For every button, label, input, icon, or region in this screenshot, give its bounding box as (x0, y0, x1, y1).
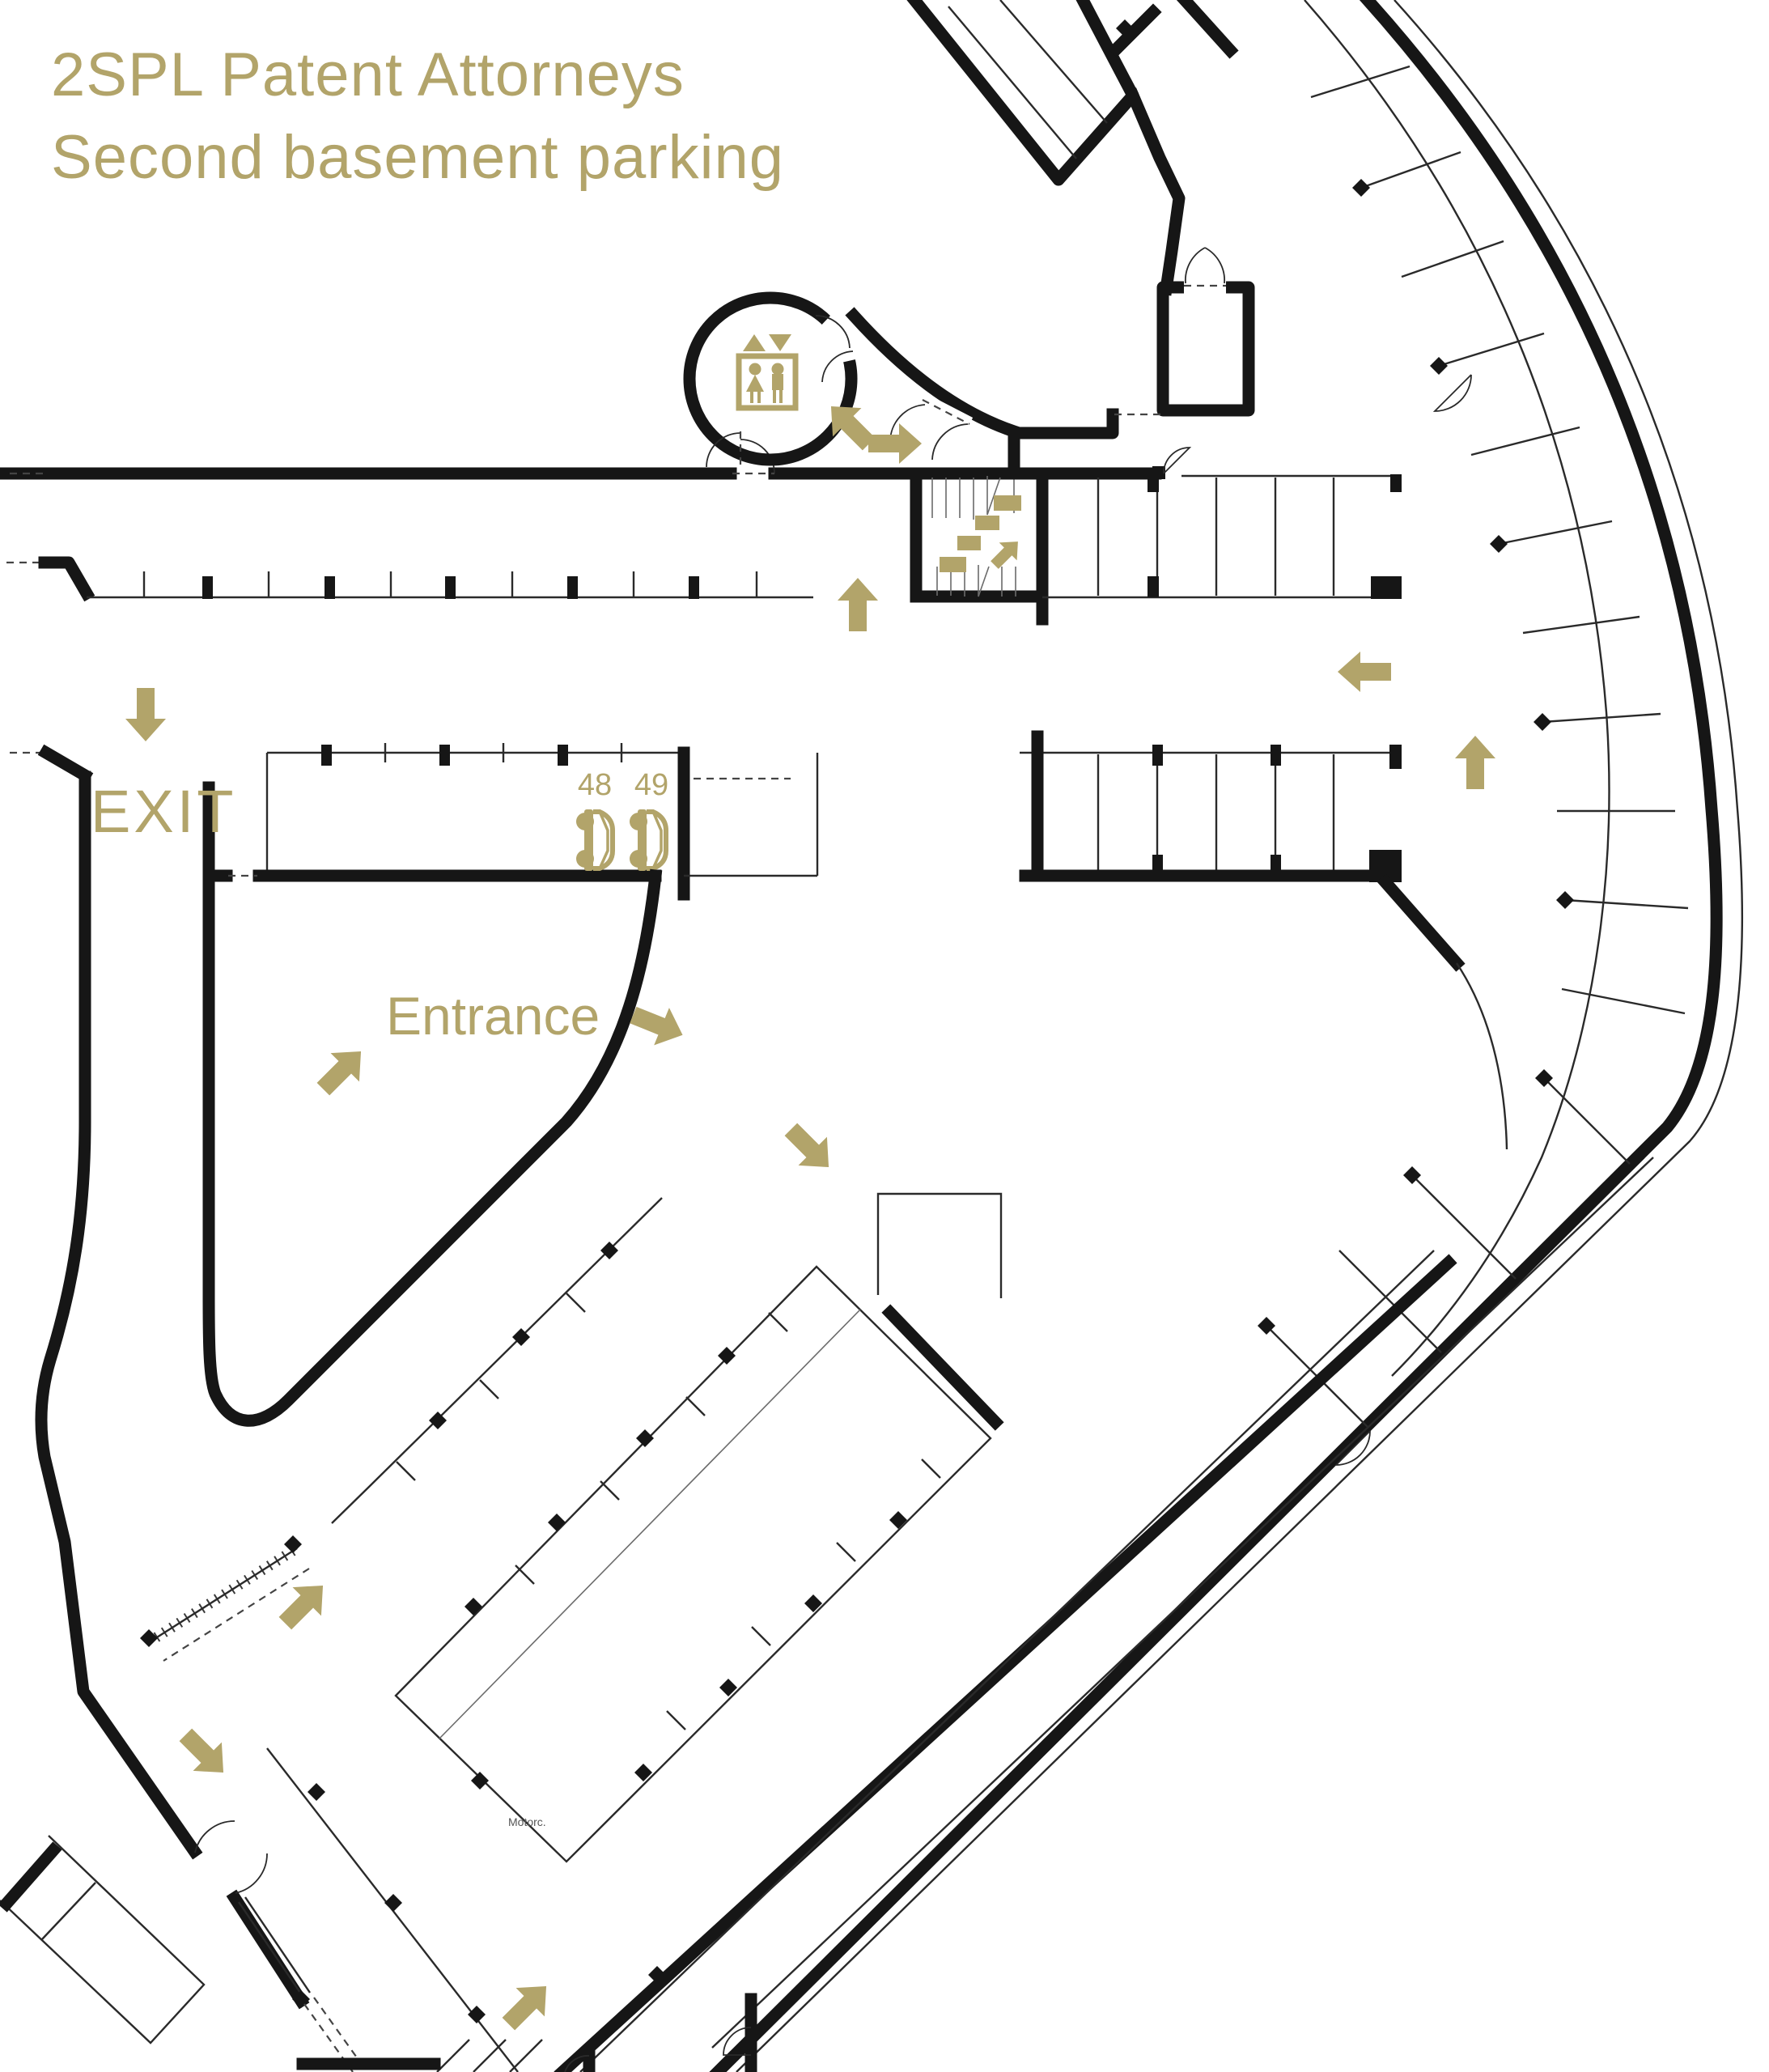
background (0, 0, 1769, 2072)
title-line-1: 2SPL Patent Attorneys (51, 40, 685, 109)
title-line-2: Second basement parking (51, 123, 784, 192)
exit-label: EXIT (91, 778, 236, 845)
motorcycle-label: Motorc. (508, 1815, 546, 1828)
floor-plan-canvas: 48 49 (0, 0, 1769, 2072)
parking-floor-plan: 48 49 (0, 0, 1769, 2072)
spot-48-number: 48 (578, 768, 612, 802)
spot-49-number: 49 (634, 768, 668, 802)
entrance-label: Entrance (386, 986, 600, 1046)
